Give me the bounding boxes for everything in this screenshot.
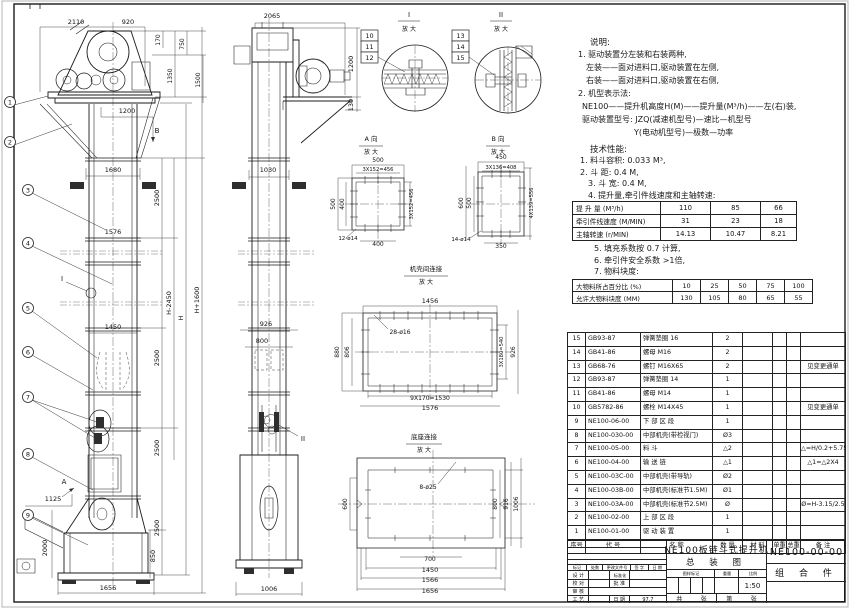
bom-table: 15GB93-87弹簧垫圈 16214GB41-86螺母 M16213GB68-… <box>567 332 846 554</box>
bom-cell <box>773 457 787 471</box>
detail-i-marker: I <box>61 275 63 283</box>
bom-cell: 上 部 区 段 <box>641 512 713 526</box>
value-cell: 65 <box>757 292 785 304</box>
detail-title: 放 大 <box>419 278 433 286</box>
balloon-number: 4 <box>26 239 30 247</box>
bom-cell: 7 <box>568 443 586 457</box>
bom-cell <box>773 512 787 526</box>
bom-cell: 9 <box>568 415 586 429</box>
dimension-label: 926 <box>510 346 517 358</box>
bom-cell <box>787 346 801 360</box>
bom-cell <box>773 374 787 388</box>
bom-cell <box>773 401 787 415</box>
bom-cell: △=H/0.2+5.75 <box>801 443 846 457</box>
bom-cell: 3 <box>568 498 586 512</box>
note-line: 驱动装置型号: JZQ(减速机型号)—速比—机型号 <box>572 113 842 126</box>
bom-cell <box>787 374 801 388</box>
boxed-ref-number: 14 <box>456 43 464 51</box>
balloon-number: 3 <box>26 186 30 194</box>
value-cell: 75 <box>757 280 785 292</box>
bom-cell: NE100-03A-00 <box>586 498 641 512</box>
dimension-label: 700 <box>424 556 436 563</box>
page-label2: 张 <box>751 594 757 603</box>
bom-cell: 12 <box>568 374 586 388</box>
note-line: 5. 填充系数按 0.7 计算, <box>572 243 685 255</box>
detail-title: B 向 <box>491 134 504 143</box>
bom-row: 12GB93-87弹簧垫圈 141 <box>568 374 846 388</box>
bom-cell <box>743 388 773 402</box>
dimension-label: 500 <box>466 197 473 209</box>
boxed-ref-number: 12 <box>365 54 373 62</box>
value-cell: 8.21 <box>761 228 797 241</box>
bom-cell <box>787 457 801 471</box>
bom-row: 14GB41-86螺母 M162 <box>568 346 846 360</box>
dimension-label: 2065 <box>264 12 281 20</box>
dimension-label: 920 <box>122 18 134 26</box>
bom-cell: 1 <box>713 401 743 415</box>
notes-block: 说明: 1. 驱动装置分左装和右装两种,左装——面对进料口,驱动装置在左侧,右装… <box>572 36 842 139</box>
dimension-label: 2500 <box>153 190 161 207</box>
note-line: 右装——面对进料口,驱动装置在右侧, <box>572 74 842 87</box>
bom-cell <box>743 429 773 443</box>
value-cell: 105 <box>701 292 729 304</box>
page-label: 第 <box>726 594 732 603</box>
dimension-label: 3X136=408 <box>485 165 516 171</box>
bom-row: 11GB41-86螺母 M141 <box>568 388 846 402</box>
dimension-label: 750 <box>179 38 186 50</box>
dimension-label: 1656 <box>100 584 117 592</box>
bom-cell: NE100-030-00 <box>586 429 641 443</box>
performance-row: 主轴转速 (r/MIN)14.1310.478.21 <box>573 228 797 241</box>
bom-cell: 1 <box>568 526 586 540</box>
dimension-label: 1006 <box>261 585 278 593</box>
dimension-label: 1450 <box>422 566 439 574</box>
bom-cell: 2 <box>713 360 743 374</box>
bom-cell <box>773 443 787 457</box>
dimension-label: 850 <box>149 550 157 562</box>
dimension-label: 1656 <box>422 587 439 595</box>
bom-cell <box>801 470 846 484</box>
detail-title: I <box>408 11 410 19</box>
bom-row: 7NE100-05-00料 斗△2△=H/0.2+5.75 <box>568 443 846 457</box>
bom-cell: 15 <box>568 333 586 347</box>
value-cell: 110 <box>661 202 711 215</box>
note-line: 4. 提升量,牵引件线速度和主轴转速: <box>572 190 715 202</box>
dimension-label: 1576 <box>422 404 439 412</box>
bom-cell: Ø <box>713 498 743 512</box>
dimension-label: 1500 <box>195 72 202 87</box>
boxed-ref-number: 10 <box>365 32 373 40</box>
bom-row: 10GB5782-86螺栓 M14X451见变更通单 <box>568 401 846 415</box>
bom-cell: 驱 动 装 置 <box>641 526 713 540</box>
bom-row: 3NE100-03A-00中部机壳(标准节2.5M)ØØ=H-3.15/2.5 <box>568 498 846 512</box>
balloon-number: 8 <box>26 450 30 458</box>
dimension-label: 2500 <box>153 440 161 457</box>
dimension-label: 800 <box>256 337 268 345</box>
dimension-label: 2500 <box>153 520 161 537</box>
note-line: 左装——面对进料口,驱动装置在左侧, <box>572 61 842 74</box>
bom-cell: NE100-06-00 <box>586 415 641 429</box>
drawing-title-line1: NE100板链斗式提升机 <box>664 543 769 556</box>
dimension-label: 14-ø14 <box>451 237 471 243</box>
bom-cell: 2 <box>713 346 743 360</box>
bom-cell <box>787 443 801 457</box>
bom-cell <box>787 498 801 512</box>
bom-cell: △2 <box>713 443 743 457</box>
detail-title: 放 大 <box>494 25 508 33</box>
performance-row: 牵引件线速度 (M/MIN)312318 <box>573 215 797 228</box>
process-label: 工 艺 <box>572 596 583 603</box>
bom-cell <box>787 415 801 429</box>
bom-cell: 螺母 M14 <box>641 388 713 402</box>
value-cell: 25 <box>701 280 729 292</box>
bom-cell: 4 <box>568 484 586 498</box>
drawing-number: NE100-00-00 <box>766 541 846 563</box>
bom-row: 15GB93-87弹簧垫圈 162 <box>568 333 846 347</box>
dimension-label: 130 <box>347 99 355 111</box>
row-label: 牵引件线速度 (M/MIN) <box>573 215 661 228</box>
balloon-number: 5 <box>26 304 30 312</box>
dimension-label: 600 <box>342 498 349 510</box>
sheet-number: 第 张 <box>716 593 766 603</box>
date-label: 日 期 <box>614 596 625 603</box>
bom-row: 13GB68-76螺钉 M16X652见变更通单 <box>568 360 846 374</box>
dimension-label: 3X180=540 <box>499 336 505 367</box>
drawing-title: NE100板链斗式提升机 总 装 图 <box>666 541 766 569</box>
note-line: Y(电动机型号)—极数—功率 <box>572 126 842 139</box>
bom-cell: 中部机壳(带检视门) <box>641 429 713 443</box>
detail-title: 放 大 <box>402 25 416 33</box>
detail-title: 放 大 <box>364 148 378 156</box>
dimension-label: 806 <box>344 346 351 358</box>
bom-cell: 2 <box>568 512 586 526</box>
bom-row: 6NE100-04-00输 送 链△1△1=△2X4 <box>568 457 846 471</box>
bom-cell <box>743 484 773 498</box>
bom-cell: 中部机壳(带导轨) <box>641 470 713 484</box>
note-line: 7. 物料块度: <box>572 266 685 278</box>
bom-cell <box>743 415 773 429</box>
bom-cell: GB93-87 <box>586 374 641 388</box>
bom-cell: 14 <box>568 346 586 360</box>
value-cell: 31 <box>661 215 711 228</box>
detail-ii-marker: II <box>301 435 305 443</box>
bom-row: 8NE100-030-00中部机壳(带检视门)Ø3 <box>568 429 846 443</box>
performance-row: 提 升 量 (M³/h)1108566 <box>573 202 797 215</box>
design-label: 设 计 <box>572 572 583 579</box>
bom-cell: GB41-86 <box>586 388 641 402</box>
bom-cell: 1 <box>713 388 743 402</box>
note-line: NE100——提升机高度H(M)——提升量(M³/h)——左(右)装, <box>572 100 842 113</box>
bom-cell <box>773 346 787 360</box>
dimension-label: 916 <box>503 498 510 510</box>
bom-cell <box>773 415 787 429</box>
bom-cell <box>787 484 801 498</box>
dimension-label: 2000 <box>41 540 49 557</box>
drawing-title-line2: 总 装 图 <box>686 556 747 568</box>
bom-cell <box>801 374 846 388</box>
bom-cell <box>743 512 773 526</box>
dimension-label: 500 <box>372 157 384 164</box>
detail-title: 机壳间连接 <box>410 264 443 273</box>
dimension-label: 1450 <box>105 323 122 331</box>
dimension-label: 800 <box>492 498 499 510</box>
audit-label: 审 核 <box>572 588 583 595</box>
bom-cell: 见变更通单 <box>801 401 846 415</box>
bom-cell: 1 <box>713 374 743 388</box>
detail-title: 放 大 <box>417 446 431 454</box>
dimension-label: 450 <box>495 154 507 161</box>
bom-cell <box>743 401 773 415</box>
dimension-label: 1200 <box>347 56 355 73</box>
bom-cell <box>743 443 773 457</box>
boxed-ref-number: 11 <box>365 43 373 51</box>
title-block: 标记 处数 更改文件号 签 字 日 期 设 计 标准化 校 对 批 准 审 核 … <box>567 540 845 602</box>
bom-cell <box>801 526 846 540</box>
dimension-label: 1680 <box>105 166 122 174</box>
bom-cell: NE100-01-00 <box>586 526 641 540</box>
bom-cell: △1=△2X4 <box>801 457 846 471</box>
value-cell: 80 <box>729 292 757 304</box>
date-value: 97.7 <box>642 597 653 603</box>
bom-row: 5NE100-03C-00中部机壳(带导轨)Ø2 <box>568 470 846 484</box>
bom-cell: NE100-03C-00 <box>586 470 641 484</box>
dimension-label: 400 <box>372 241 384 248</box>
standardization-label: 标准化 <box>613 572 625 578</box>
detail-title: II <box>499 11 503 19</box>
bom-cell <box>773 360 787 374</box>
bom-cell: NE100-03B-00 <box>586 484 641 498</box>
lump-size-row: 大物料所占百分比 (%)10255075100 <box>573 280 813 292</box>
dimension-label: 8-ø25 <box>419 484 436 491</box>
dimension-label: H <box>177 315 185 320</box>
bom-cell <box>773 484 787 498</box>
note-line: 2. 机型表示法: <box>572 87 842 100</box>
bom-cell: 13 <box>568 360 586 374</box>
dimension-label: H+1600 <box>193 287 201 314</box>
dimension-label: 1576 <box>105 228 122 236</box>
balloon-number: 6 <box>26 348 30 356</box>
dimension-label: 1456 <box>422 297 439 305</box>
scale-value: 1:50 <box>738 577 766 593</box>
dimension-label: 3X152=456 <box>409 188 415 219</box>
value-cell: 55 <box>785 292 813 304</box>
value-cell: 10 <box>673 280 701 292</box>
sheet-label: 张 <box>701 594 707 603</box>
row-label: 大物料所占百分比 (%) <box>573 280 673 292</box>
bom-cell: 1 <box>713 526 743 540</box>
note-line: 1. 驱动装置分左装和右装两种, <box>572 48 842 61</box>
bom-cell <box>773 526 787 540</box>
row-label: 提 升 量 (M³/h) <box>573 202 661 215</box>
dimension-label: 926 <box>260 320 272 328</box>
bom-row: 2NE100-02-00上 部 区 段1 <box>568 512 846 526</box>
note-line: 2. 斗 距: 0.4 M, <box>572 167 715 179</box>
bom-cell: 输 送 链 <box>641 457 713 471</box>
balloon-number: 2 <box>8 138 12 146</box>
bom-cell: 螺钉 M16X65 <box>641 360 713 374</box>
bom-cell: 5 <box>568 470 586 484</box>
bom-cell <box>787 429 801 443</box>
dimension-label: 2500 <box>153 350 161 367</box>
bom-cell <box>743 470 773 484</box>
bom-cell <box>743 457 773 471</box>
lump-size-table: 大物料所占百分比 (%)10255075100允许大物料块度 (MM)13010… <box>572 279 813 304</box>
dimension-label: 350 <box>495 243 507 250</box>
boxed-ref-number: 13 <box>456 32 464 40</box>
dimension-label: 2110 <box>68 18 85 26</box>
bom-cell <box>743 374 773 388</box>
dimension-label: 1006 <box>513 496 520 511</box>
bom-cell: 中部机壳(标准节2.5M) <box>641 498 713 512</box>
bom-cell <box>801 415 846 429</box>
bom-cell <box>743 498 773 512</box>
dimension-label: 400 <box>339 198 346 210</box>
bom-cell <box>787 388 801 402</box>
bom-cell <box>743 360 773 374</box>
bom-cell <box>773 429 787 443</box>
bom-cell: 中部机壳(标准节1.5M) <box>641 484 713 498</box>
bom-cell: 6 <box>568 457 586 471</box>
value-cell: 100 <box>785 280 813 292</box>
dimension-label: 880 <box>334 346 341 358</box>
performance-table: 提 升 量 (M³/h)1108566牵引件线速度 (M/MIN)312318主… <box>572 201 797 241</box>
bom-cell <box>787 401 801 415</box>
balloon-number: 9 <box>26 511 30 519</box>
spec-lines: 1. 料斗容积: 0.033 M³,2. 斗 距: 0.4 M,3. 斗 宽: … <box>572 155 715 201</box>
bom-cell <box>801 346 846 360</box>
bom-cell <box>743 333 773 347</box>
bom-cell: 10 <box>568 401 586 415</box>
lump-size-row: 允许大物料块度 (MM)130105806555 <box>573 292 813 304</box>
bom-cell <box>801 333 846 347</box>
bom-cell: GB41-86 <box>586 346 641 360</box>
bom-cell <box>801 512 846 526</box>
notes-lines: 1. 驱动装置分左装和右装两种,左装——面对进料口,驱动装置在左侧,右装——面对… <box>572 48 842 139</box>
bom-cell: 见变更通单 <box>801 360 846 374</box>
bom-cell <box>801 484 846 498</box>
bom-cell: 料 斗 <box>641 443 713 457</box>
dimension-label: 28-ø16 <box>389 329 410 336</box>
stamp-label: 图样标记 <box>682 571 699 577</box>
value-cell: 66 <box>761 202 797 215</box>
dimension-label: 1125 <box>45 495 62 503</box>
total-label: 共 <box>676 594 682 603</box>
dimension-label: 170 <box>155 34 162 46</box>
dimension-label: H-2450 <box>165 291 173 315</box>
row-label: 主轴转速 (r/MIN) <box>573 228 661 241</box>
value-cell: 18 <box>761 215 797 228</box>
bom-cell <box>801 388 846 402</box>
bom-cell: 8 <box>568 429 586 443</box>
bom-cell: Ø3 <box>713 429 743 443</box>
value-cell: 85 <box>711 202 761 215</box>
balloon-number: 1 <box>8 98 12 106</box>
bom-cell: GB93-87 <box>586 333 641 347</box>
bom-cell <box>773 333 787 347</box>
scale-label: 比例 <box>748 571 756 577</box>
drawing-sheet: 2110920170135075015001200B16801576145025… <box>0 0 850 609</box>
bom-cell: 下 部 区 段 <box>641 415 713 429</box>
bom-cell: 1 <box>713 415 743 429</box>
bom-cell: NE100-05-00 <box>586 443 641 457</box>
bom-row: 9NE100-06-00下 部 区 段1 <box>568 415 846 429</box>
section-a-marker: A <box>62 478 67 486</box>
bom-cell: GB5782-86 <box>586 401 641 415</box>
dimension-label: 1566 <box>422 576 439 584</box>
spec-lines: 5. 填充系数按 0.7 计算,6. 牵引件安全系数 >1倍,7. 物料块度: <box>572 243 685 278</box>
dimension-label: 12-ø14 <box>338 236 358 242</box>
value-cell: 50 <box>729 280 757 292</box>
weight-label: 重量 <box>722 571 730 577</box>
bom-cell <box>773 498 787 512</box>
bom-cell: Ø2 <box>713 470 743 484</box>
detail-title: A 向 <box>364 134 377 143</box>
dimension-label: 600 <box>458 197 465 209</box>
bom-cell: 弹簧垫圈 14 <box>641 374 713 388</box>
bom-cell <box>773 470 787 484</box>
bom-cell: GB68-76 <box>586 360 641 374</box>
bom-cell <box>787 526 801 540</box>
bom-cell: 弹簧垫圈 16 <box>641 333 713 347</box>
dimension-label: 4X139=556 <box>529 187 535 218</box>
bom-cell <box>787 360 801 374</box>
dimension-label: 9X170=1530 <box>410 395 450 402</box>
bom-cell <box>743 526 773 540</box>
notes-heading: 说明: <box>572 36 842 48</box>
dimension-label: 500 <box>330 198 337 210</box>
bom-cell: 2 <box>713 333 743 347</box>
bom-cell: 螺栓 M14X45 <box>641 401 713 415</box>
note-line: 6. 牵引件安全系数 >1倍, <box>572 255 685 267</box>
boxed-ref-number: 15 <box>456 54 464 62</box>
dimension-label: 3X152=456 <box>362 167 393 173</box>
dimension-label: 1030 <box>260 166 277 174</box>
note-line: 3. 斗 宽: 0.4 M, <box>572 178 715 190</box>
bom-cell <box>801 429 846 443</box>
bom-cell: Ø=H-3.15/2.5 <box>801 498 846 512</box>
bom-cell: 螺母 M16 <box>641 346 713 360</box>
bom-row: 1NE100-01-00驱 动 装 置1 <box>568 526 846 540</box>
dimension-label: 1350 <box>167 68 174 83</box>
part-class-text: 组 合 件 <box>775 566 838 579</box>
bom-cell <box>773 388 787 402</box>
check-label: 校 对 <box>572 580 583 587</box>
value-cell: 23 <box>711 215 761 228</box>
bom-cell: NE100-04-00 <box>586 457 641 471</box>
bom-cell <box>787 333 801 347</box>
bom-cell <box>743 346 773 360</box>
bom-cell <box>787 470 801 484</box>
bom-row: 4NE100-03B-00中部机壳(标准节1.5M)Ø1 <box>568 484 846 498</box>
value-cell: 130 <box>673 292 701 304</box>
detail-title: 底座连接 <box>411 432 438 441</box>
balloon-number: 7 <box>26 393 30 401</box>
sheet-total: 共 张 <box>666 593 716 603</box>
dimension-label: 1200 <box>119 107 136 115</box>
bom-cell: 1 <box>713 512 743 526</box>
note-line: 1. 料斗容积: 0.033 M³, <box>572 155 715 167</box>
row-label: 允许大物料块度 (MM) <box>573 292 673 304</box>
drawing-number-text: NE100-00-00 <box>770 547 843 558</box>
value-cell: 10.47 <box>711 228 761 241</box>
bom-cell: Ø1 <box>713 484 743 498</box>
part-class: 组 合 件 <box>766 563 846 581</box>
bom-cell: 11 <box>568 388 586 402</box>
value-cell: 14.13 <box>661 228 711 241</box>
bom-cell: △1 <box>713 457 743 471</box>
specs-heading: 技术性能: <box>572 143 627 155</box>
view-b-marker: B <box>155 127 160 135</box>
